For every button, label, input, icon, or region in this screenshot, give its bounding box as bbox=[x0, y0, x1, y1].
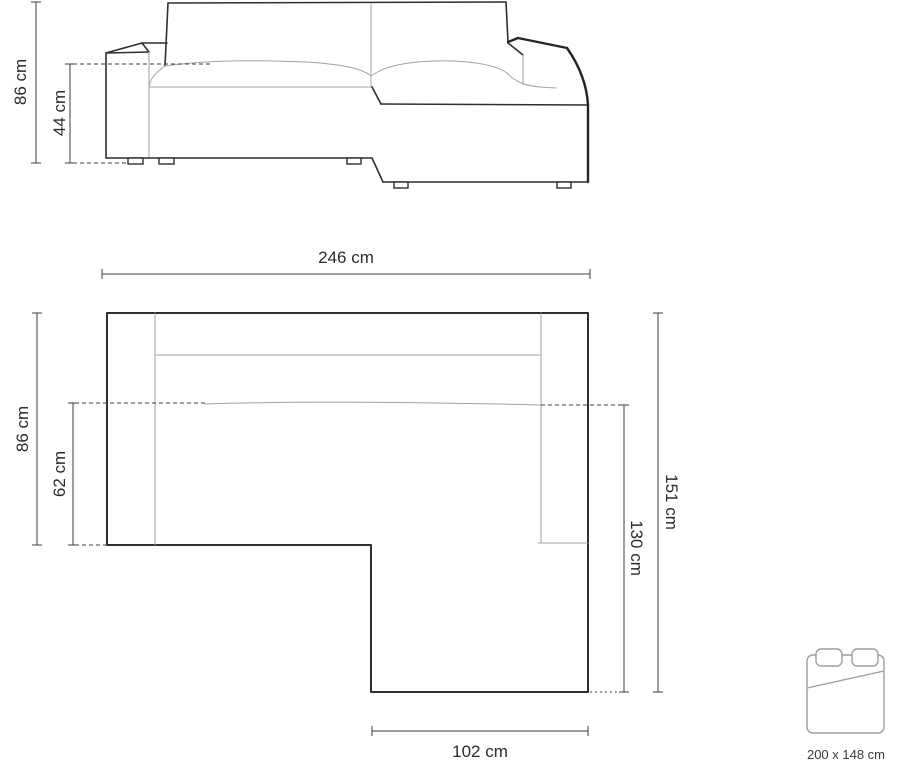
right-cushion-top-curve bbox=[371, 61, 507, 76]
sofa-top-view bbox=[107, 313, 588, 692]
chaise-top-left-slant bbox=[372, 87, 381, 104]
overall-height-label: 86 cm bbox=[11, 59, 30, 105]
seat-depth-label: 62 cm bbox=[50, 451, 69, 497]
right-arm-face-diagonal bbox=[508, 43, 523, 55]
right-arm-bottom-contour bbox=[507, 73, 556, 88]
front-view-dimensions: 86 cm 44 cm bbox=[11, 2, 210, 163]
sofa-leg bbox=[347, 158, 361, 164]
sofa-dimension-diagram: 86 cm 44 cm 246 cm 86 cm bbox=[0, 0, 900, 770]
backrest-left-edge bbox=[165, 3, 168, 66]
right-arm-outer-edge bbox=[567, 48, 588, 105]
overall-width-label: 246 cm bbox=[318, 248, 374, 267]
sofa-leg bbox=[159, 158, 174, 164]
double-bed-icon bbox=[807, 649, 884, 733]
left-arm-front-top-edge bbox=[106, 52, 149, 53]
seat-height-label: 44 cm bbox=[50, 90, 69, 136]
chaise-length-label: 130 cm bbox=[627, 520, 646, 576]
left-arm-top-corner bbox=[142, 43, 149, 52]
backrest-top-edge bbox=[168, 2, 506, 3]
overall-depth-label: 86 cm bbox=[13, 406, 32, 452]
bed-pillow-left bbox=[816, 649, 842, 666]
top-view-dimensions: 246 cm 86 cm 62 cm 151 cm 130 cm bbox=[13, 248, 681, 761]
chaise-bottom-left-slant bbox=[372, 158, 383, 182]
left-cushion-top-curve bbox=[165, 61, 371, 76]
chaise-front-top-edge bbox=[381, 104, 588, 105]
left-cushion-corner-curve bbox=[149, 66, 165, 87]
chaise-width-label: 102 cm bbox=[452, 742, 508, 761]
sleeping-area: 200 x 148 cm bbox=[807, 649, 885, 762]
sofa-front-elevation bbox=[106, 2, 588, 188]
plan-seat-front-line bbox=[205, 402, 541, 405]
right-arm-top-edge bbox=[508, 38, 567, 48]
diagram-svg: 86 cm 44 cm 246 cm 86 cm bbox=[0, 0, 900, 770]
sofa-leg bbox=[557, 182, 571, 188]
bed-pillow-right bbox=[852, 649, 878, 666]
sofa-leg bbox=[128, 158, 143, 164]
side-length-label: 151 cm bbox=[662, 474, 681, 530]
plan-outline bbox=[107, 313, 588, 692]
backrest-right-edge bbox=[506, 2, 508, 42]
sleeping-area-size-label: 200 x 148 cm bbox=[807, 747, 885, 762]
sofa-leg bbox=[394, 182, 408, 188]
